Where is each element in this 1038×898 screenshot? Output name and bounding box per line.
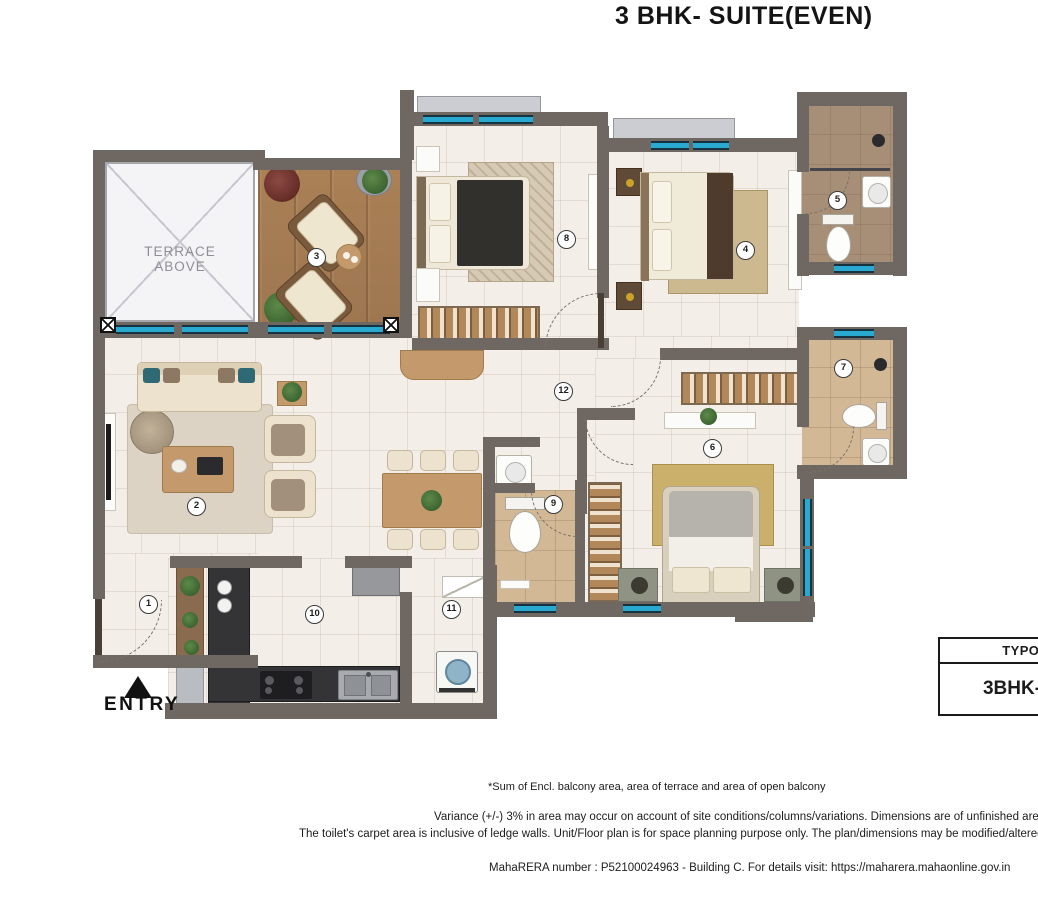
wall (483, 483, 535, 493)
window (651, 141, 689, 150)
deck-side-table (336, 244, 362, 270)
sofa-pillow (218, 368, 235, 383)
wall (170, 556, 302, 568)
wall (483, 437, 540, 447)
room-number-badge: 8 (557, 230, 576, 249)
plant (182, 612, 198, 628)
terrace-above-label: TERRACE ABOVE (118, 244, 242, 274)
window (332, 325, 390, 334)
toilet-wc-bowl (509, 511, 541, 553)
window (116, 325, 174, 334)
plant (180, 576, 200, 596)
toilet-wc-bowl (842, 404, 876, 428)
canister (217, 598, 232, 613)
bed (640, 172, 734, 280)
plant (421, 490, 442, 511)
armchair (264, 470, 316, 518)
room-number-badge: 3 (307, 248, 326, 267)
cooktop-hob (260, 671, 312, 699)
wall (93, 150, 105, 338)
plant (700, 408, 717, 425)
room-number-badge: 11 (442, 600, 461, 619)
footnote-maharera: MahaRERA number : P52100024963 - Buildin… (489, 862, 1010, 874)
wall (660, 348, 802, 360)
window (182, 325, 248, 334)
column-marker (383, 317, 399, 333)
dining-chair (453, 529, 479, 550)
sofa (137, 362, 262, 412)
sideboard (400, 350, 484, 380)
bedside-cabinet (416, 268, 440, 302)
coffee-table (162, 446, 234, 493)
wall (93, 338, 105, 599)
toilet-wc (822, 214, 854, 225)
toilet-wc-bowl (826, 226, 851, 262)
footnote-balcony-sum: *Sum of Encl. balcony area, area of terr… (488, 781, 826, 793)
dining-chair (453, 450, 479, 471)
door-leaf (598, 293, 604, 348)
window (623, 604, 661, 613)
window (803, 549, 812, 596)
sofa-pillow (163, 368, 180, 383)
sofa-pillow (143, 368, 160, 383)
floor-plan-page: { "title": "3 BHK- SUITE(EVEN)", "plan":… (0, 0, 1038, 898)
window (423, 115, 473, 124)
toilet-wc (876, 402, 887, 430)
window (834, 329, 874, 338)
typology-table-header: TYPOLOGY (940, 639, 1038, 664)
wardrobe (418, 306, 540, 340)
shower-head-icon (874, 358, 887, 371)
window (514, 604, 556, 613)
room-number-badge: 5 (828, 191, 847, 210)
dining-chair (420, 450, 446, 471)
corner-shelf (442, 576, 486, 598)
room-number-badge: 10 (305, 605, 324, 624)
tv-screen (106, 424, 111, 500)
typology-table-value: 3BHK-SUITE (940, 664, 1038, 714)
wall (893, 327, 907, 479)
room-number-badge: 7 (834, 359, 853, 378)
wall (797, 106, 809, 172)
wall (797, 92, 907, 106)
bedside-table (616, 168, 642, 196)
terrace-above-area (105, 162, 255, 322)
footnote-toilet-carpet: The toilet's carpet area is inclusive of… (299, 828, 1038, 840)
wall (400, 592, 412, 716)
column-marker (100, 317, 116, 333)
room-number-badge: 4 (736, 241, 755, 260)
wall (483, 565, 497, 715)
window (479, 115, 533, 124)
wall (735, 612, 813, 622)
shower-head-icon (872, 134, 885, 147)
washbasin (862, 438, 890, 466)
wall (93, 150, 265, 162)
bed (416, 176, 530, 270)
bedside-platform (618, 568, 658, 602)
bedside-platform (764, 568, 804, 602)
dining-chair (387, 450, 413, 471)
dining-chair (387, 529, 413, 550)
wall (400, 112, 412, 338)
typology-table: TYPOLOGY 3BHK-SUITE (938, 637, 1038, 716)
bedside-table (616, 282, 642, 310)
wall (345, 556, 412, 568)
dining-chair (420, 529, 446, 550)
washbasin (862, 176, 891, 208)
sofa-pillow (238, 368, 255, 383)
armchair (264, 415, 316, 463)
window (834, 264, 874, 273)
room-number-badge: 9 (544, 495, 563, 514)
wardrobe (588, 482, 622, 602)
wall (165, 703, 497, 719)
plant (184, 640, 199, 655)
wall (253, 158, 405, 170)
toilet-shelf (500, 580, 530, 589)
floor-plan: TERRACE ABOVE ENTRY 123456789101112 (0, 0, 1038, 760)
room-number-badge: 2 (187, 497, 206, 516)
plant (282, 382, 302, 402)
wardrobe (681, 372, 799, 405)
footnote-variance: Variance (+/-) 3% in area may occur on a… (434, 811, 1038, 823)
room-number-badge: 6 (703, 439, 722, 458)
room-number-badge: 1 (139, 595, 158, 614)
window (803, 499, 812, 546)
entry-label: ENTRY (104, 694, 180, 716)
master-bed (662, 486, 760, 606)
bedside-table (416, 146, 440, 172)
canister (217, 580, 232, 595)
wall (893, 92, 907, 276)
room-number-badge: 12 (554, 382, 573, 401)
window (693, 141, 729, 150)
washing-machine (436, 651, 478, 693)
window (268, 325, 324, 334)
plant (264, 166, 300, 202)
kitchen-sink (338, 670, 398, 700)
